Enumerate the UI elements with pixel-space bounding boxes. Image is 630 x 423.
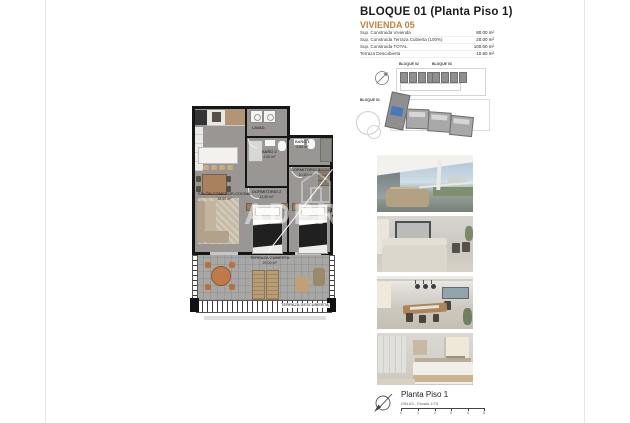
area-label: Sup. Construida Vivienda [360, 30, 411, 36]
interior-wall [245, 136, 287, 138]
stool [227, 165, 233, 170]
area-label: Terraza Descubierta [360, 51, 400, 57]
scale-bar: 0 1 2 3 4 5 [401, 408, 485, 416]
scale-tick-label: 2 [434, 411, 436, 415]
footer-scale-note: DIN A3 - Escala 1/75 [401, 401, 438, 406]
sofa [205, 201, 216, 235]
interior-wall [245, 106, 247, 187]
washing-machine [250, 110, 263, 123]
terrace-chair [229, 284, 235, 290]
railing-post [190, 298, 199, 312]
area-value: 80.00 m² [476, 30, 494, 36]
room-label-terraza-descubierta: TERRAZA DESCUBIERTA [280, 303, 330, 308]
footer-plan-title: Planta Piso 1 [401, 390, 448, 399]
site-terrace-strip [400, 83, 461, 91]
table-row: Sup. Construida TOTAL 100.00 m² [360, 44, 494, 51]
balcony-shadow [204, 316, 326, 320]
chair [196, 176, 201, 182]
room-label-salon: SALÓN-COMEDOR-COCINA 38.50 m² [198, 192, 251, 201]
room-label-bano2: BAÑO 2 4.00 m² [262, 150, 277, 159]
stool [203, 165, 209, 170]
area-label: Sup. Construida Terraza Cubierta (100%) [360, 37, 442, 43]
shower [320, 138, 332, 162]
page-edge-right [584, 0, 585, 423]
sink [264, 139, 276, 147]
area-table: Sup. Construida Vivienda 80.00 m² Sup. C… [360, 30, 494, 58]
terrace-round-table [211, 266, 231, 286]
highlighted-unit [390, 106, 404, 117]
site-road-roundabout [367, 125, 381, 139]
site-building [449, 115, 474, 137]
sofa-chaise [205, 231, 229, 243]
toilet [277, 140, 287, 152]
fridge [195, 110, 207, 125]
site-plan: BLOQUE 02 BLOQUE 03 BLOQUE 01 [360, 59, 490, 137]
photo-bedroom [377, 333, 473, 385]
page-edge-left [45, 0, 46, 423]
scale-tick-label: 0 [400, 411, 402, 415]
washing-machine [263, 110, 276, 123]
table-row: Terraza Descubierta 10.50 m² [360, 51, 494, 58]
room-label-dormitorio2: DORMITORIO 2 11.50 m² [252, 190, 281, 199]
site-building-row [432, 72, 467, 83]
sofa [197, 201, 205, 243]
site-label-bloque01: BLOQUE 01 [360, 98, 380, 102]
terrace-chair [229, 262, 235, 268]
photo-terrace-exterior [377, 155, 473, 212]
room-label-bano1: BAÑO 1 3.50 m² [295, 140, 310, 149]
page-title: BLOQUE 01 (Planta Piso 1) [360, 6, 540, 18]
site-building-row [400, 72, 435, 83]
scale-tick-label: 4 [467, 411, 469, 415]
terrace-chair [205, 262, 211, 268]
site-label-bloque03: BLOQUE 03 [432, 62, 452, 66]
lounge-chair [295, 276, 309, 292]
area-value: 100.00 m² [474, 44, 494, 50]
scale-tick-label: 5 [483, 411, 485, 415]
chair [226, 176, 231, 182]
kitchen-cabinets [225, 110, 245, 125]
terrace-chair [205, 284, 211, 290]
room-label-dormitorio1: DORMITORIO 1 10.50 m² [291, 168, 320, 177]
room-label-lavadero: LAVAD. [252, 126, 266, 131]
stool [211, 165, 217, 170]
table-row: Sup. Construida Terraza Cubierta (100%) … [360, 37, 494, 44]
stool [219, 165, 225, 170]
photo-dining-room [377, 276, 473, 329]
scale-tick-label: 1 [417, 411, 419, 415]
sun-lounger [252, 270, 265, 300]
sliding-glass-door [210, 252, 238, 255]
area-value: 20.00 m² [476, 37, 494, 43]
terrace-railing-right [329, 255, 335, 302]
cooktop [212, 112, 221, 122]
area-label: Sup. Construida TOTAL [360, 44, 408, 50]
unit-subtitle: VIVIENDA 05 [360, 20, 540, 30]
site-building [427, 111, 451, 133]
compass-icon [372, 391, 394, 413]
planter [313, 268, 325, 286]
sun-lounger [266, 270, 279, 300]
photo-living-room [377, 216, 473, 272]
site-label-bloque02: BLOQUE 02 [399, 62, 419, 66]
header: BLOQUE 01 (Planta Piso 1) VIVIENDA 05 [360, 6, 540, 30]
interior-wall [287, 138, 289, 253]
area-value: 10.50 m² [476, 51, 494, 57]
site-building [406, 109, 430, 130]
wall [287, 106, 290, 140]
table-row: Sup. Construida Vivienda 80.00 m² [360, 30, 494, 37]
north-arrow-icon [374, 70, 390, 86]
wall [192, 106, 289, 109]
room-label-terraza-cubierta: TERRAZA CUBIERTA 20.00 m² [250, 256, 289, 265]
terrace-railing-left [192, 255, 198, 302]
kitchen-island [198, 147, 238, 164]
plan-sheet-page: BLOQUE 01 (Planta Piso 1) VIVIENDA 05 Su… [0, 0, 630, 423]
scale-tick-label: 3 [450, 411, 452, 415]
